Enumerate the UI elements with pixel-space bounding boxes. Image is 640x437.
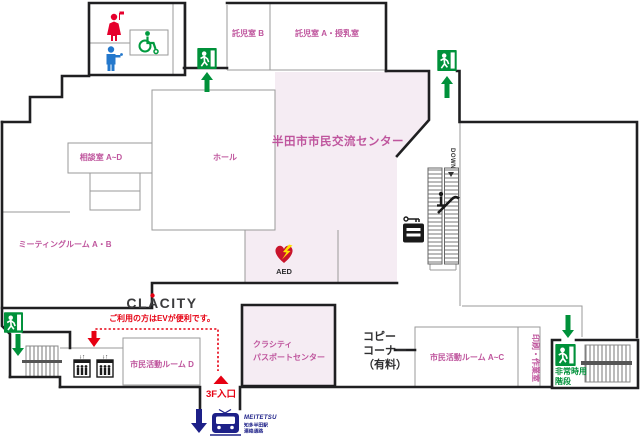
label-print-room: 印刷・作業室 [531, 334, 541, 382]
entrance-triangle [214, 376, 229, 385]
down-arrow-bottom-left [12, 334, 24, 356]
aed-label: AED [276, 267, 292, 276]
label-emergency-2: 階段 [555, 376, 571, 386]
escalator-down-label: DOWN [449, 148, 455, 169]
station-passage: 連絡通路 [244, 428, 263, 435]
label-hall: ホール [213, 153, 237, 162]
exit-sign-top-right [437, 50, 456, 71]
label-activity-d: 市民活動ルーム D [130, 359, 194, 369]
label-copy-3: （有料） [363, 357, 407, 371]
label-nursery-a: 託児室 A・授乳室 [295, 28, 359, 38]
label-emergency-1: 非常時用 [555, 366, 587, 376]
exit-sign-top-left [197, 48, 216, 69]
label-activity-ac: 市民活動ルーム A~C [430, 352, 504, 362]
escalator-lanes [428, 168, 459, 264]
elevator-icon-left [74, 360, 90, 377]
meitetsu-logo: MEITETSU [244, 415, 277, 421]
elevator-icon-right [97, 360, 113, 377]
label-nursery-b: 託児室 B [232, 28, 264, 38]
label-consult: 相談室 A~D [80, 152, 123, 162]
floor-map-3f: DOWN [0, 0, 640, 437]
coin-locker-icon [403, 217, 424, 243]
entrance-3f-label: 3F入口 [206, 389, 236, 400]
label-copy-1: コピー [363, 330, 396, 343]
label-copy-2: コーナー [363, 344, 407, 357]
exit-sign-emergency [555, 344, 575, 366]
floor-plan-svg: DOWN [0, 0, 640, 437]
clacity-logo: CLACITY [126, 295, 197, 311]
label-passport-2: パスポートセンター [253, 352, 325, 362]
station-name: 知多半田駅 [244, 422, 268, 429]
exit-sign-bottom-left [4, 312, 23, 333]
label-meeting: ミーティングルーム A・B [18, 239, 111, 249]
stairs-bottom-left [22, 346, 62, 377]
up-arrow-top-left [201, 72, 213, 92]
label-passport-1: クラシティ [253, 339, 292, 349]
restroom-women-icon [107, 12, 124, 42]
label-center-title: 半田市市民交流センター [272, 134, 404, 148]
up-arrow-top-right [441, 76, 453, 98]
stairs-emergency [581, 345, 632, 382]
ev-route-arrow [88, 331, 101, 347]
down-arrow-emergency [562, 315, 574, 338]
ev-note: ご利用の方はEVが便利です。 [109, 313, 215, 323]
clacity-person-dot-icon [150, 293, 154, 297]
restroom-men-icon [107, 46, 123, 71]
station-down-arrow-icon [191, 409, 207, 433]
train-icon [210, 410, 241, 436]
